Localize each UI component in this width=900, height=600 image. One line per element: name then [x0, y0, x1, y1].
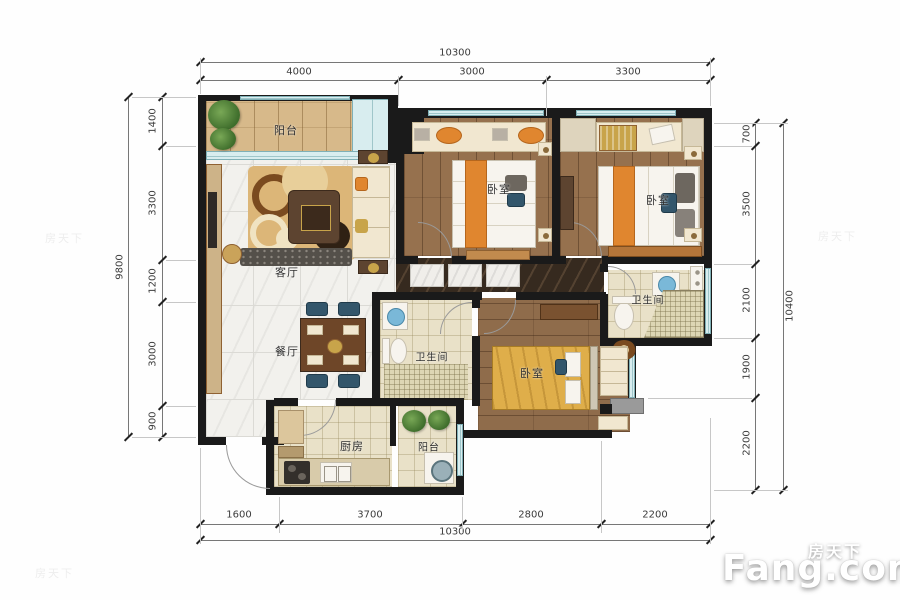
fridge — [278, 410, 304, 444]
extension-line — [714, 264, 752, 265]
dim-left-seg-3: 1200 — [148, 266, 159, 295]
dim-left-seg-4: 3000 — [148, 339, 159, 368]
wardrobe — [598, 416, 628, 430]
dim-right-seg-3: 2100 — [742, 285, 753, 314]
balcony-corner-glazing — [352, 99, 392, 153]
dim-right-total: 10400 — [785, 288, 796, 324]
dim-left-total: 9800 — [115, 252, 126, 281]
room-label-balcony-bottom: 阳台 — [418, 439, 440, 454]
washing-machine — [424, 452, 454, 484]
wall-bedroom3-bottom — [460, 430, 612, 438]
dining-chair — [338, 302, 360, 316]
wardrobe — [600, 346, 628, 396]
extension-line — [714, 123, 788, 124]
dim-bottom-seg-3: 2800 — [516, 510, 545, 521]
extension-line — [132, 97, 196, 98]
side-table — [358, 260, 388, 274]
extension-line — [648, 398, 752, 399]
bed-pillow — [675, 173, 695, 203]
bed-pillow — [565, 380, 581, 404]
lamp-icon — [691, 151, 697, 157]
bed-runner — [613, 166, 635, 246]
bed-2-foot-dresser — [608, 246, 702, 257]
kitchen-cabinet — [278, 446, 304, 458]
extension-line — [200, 58, 201, 94]
dim-left-seg-2: 3300 — [148, 188, 159, 217]
dining-table — [300, 318, 366, 372]
faint-watermark: 房天下 — [35, 565, 74, 581]
place-mat — [343, 325, 359, 335]
dim-line — [200, 62, 710, 63]
stove — [284, 461, 310, 484]
wall-bath1-right-a — [472, 300, 480, 308]
wall-kitchen-top-b — [336, 398, 464, 406]
bed-runner — [465, 160, 487, 248]
dining-chair — [306, 302, 328, 316]
dim-top-seg-2: 3000 — [457, 67, 486, 78]
dim-line — [755, 123, 756, 490]
dim-line — [128, 97, 129, 437]
dim-right-seg-5: 2200 — [742, 428, 753, 457]
extension-line — [166, 406, 196, 407]
plant — [210, 128, 236, 150]
place-mat — [307, 325, 323, 335]
room-label-bedroom-2: 卧室 — [646, 192, 670, 208]
bedroom-2-top-window — [576, 110, 676, 116]
room-label-bedroom-3: 卧室 — [520, 365, 544, 381]
wall-corner-stub — [600, 404, 612, 414]
faint-watermark: 房天下 — [818, 228, 857, 244]
bay-pillow — [492, 128, 508, 141]
plant — [208, 100, 240, 130]
bathroom-1-toilet-tank — [382, 338, 390, 364]
plant — [402, 410, 426, 432]
hallway-tile — [410, 264, 444, 287]
balcony-bottom-window — [457, 424, 463, 476]
hallway-tile — [448, 264, 482, 287]
extension-line — [714, 490, 788, 491]
place-mat — [307, 355, 323, 365]
bay-pillow — [414, 128, 430, 141]
balcony-top-window — [240, 96, 350, 100]
tv-icon — [208, 192, 217, 248]
extension-line — [200, 448, 201, 544]
wall-living-bedroom1 — [396, 108, 404, 258]
extension-line — [166, 302, 196, 303]
lamp-icon — [543, 233, 549, 239]
room-label-bath-2: 卫生间 — [632, 292, 665, 307]
dim-left-seg-1: 1400 — [148, 106, 159, 135]
side-table — [358, 150, 388, 164]
dim-line — [162, 97, 163, 437]
decor-plate — [368, 263, 379, 273]
dresser — [540, 304, 598, 320]
dim-bottom-seg-4: 2200 — [640, 510, 669, 521]
coffee-table — [288, 190, 340, 244]
bay-cushion — [436, 127, 462, 144]
extension-line — [546, 76, 547, 116]
sofa-cushion — [355, 177, 368, 191]
bay-pier — [560, 118, 596, 152]
nightstand — [684, 146, 702, 160]
dresser — [560, 176, 574, 230]
extension-line — [714, 146, 752, 147]
wall-kitchen-top-a — [274, 398, 298, 406]
hallway-tile — [486, 264, 520, 287]
burner-icon — [298, 473, 306, 480]
wall-bath2-left-b — [600, 294, 608, 346]
dim-line — [200, 80, 710, 81]
wall-bedroom3-top — [516, 292, 606, 300]
washer-drum-icon — [431, 460, 453, 482]
room-label-kitchen: 厨房 — [340, 438, 364, 454]
bathroom-1-basin — [387, 308, 405, 326]
place-mat — [343, 355, 359, 365]
nightstand — [538, 228, 552, 242]
lamp-icon — [543, 147, 549, 153]
wall-hall-top-c — [602, 256, 712, 264]
extension-line — [132, 437, 196, 438]
wall-bedroom1-bedroom2 — [552, 118, 560, 258]
wall-kitchen-balcony-divider — [390, 406, 396, 446]
kitchen-sink — [320, 462, 352, 483]
room-label-dining: 餐厅 — [275, 343, 299, 359]
corner-column — [610, 398, 644, 414]
wall-bath1-right-b — [472, 336, 480, 406]
sofa — [352, 166, 390, 258]
wall-bath1-left — [372, 300, 380, 406]
extension-line — [398, 76, 399, 106]
extension-line — [710, 58, 711, 106]
center-dish — [327, 339, 343, 354]
bathroom-2-right-window — [705, 268, 711, 334]
dim-right-seg-1: 700 — [742, 122, 753, 145]
wall-hall-top-a — [396, 256, 418, 264]
burner-icon — [288, 465, 296, 472]
headboard — [590, 346, 598, 410]
wall-kitchen-bottom — [266, 487, 464, 495]
sink-bowl — [324, 466, 337, 482]
extension-line — [166, 260, 196, 261]
room-label-balcony-top: 阳台 — [274, 122, 298, 138]
dim-top-seg-3: 3300 — [613, 67, 642, 78]
plant — [428, 410, 450, 430]
extension-line — [462, 497, 463, 533]
wall-bath2-left-a — [600, 264, 608, 272]
sink-bowl — [338, 466, 351, 482]
bay-gold-box — [599, 125, 637, 151]
entry-door-arc — [226, 445, 270, 489]
faint-watermark: 房天下 — [45, 230, 84, 246]
extension-line — [601, 441, 602, 533]
dining-chair — [338, 374, 360, 388]
decor-plate — [368, 153, 379, 163]
dim-bottom-total: 10300 — [437, 527, 473, 538]
dim-right-seg-4: 1900 — [742, 352, 753, 381]
bathroom-1-shower-floor — [384, 364, 468, 400]
living-floor-pocket — [206, 400, 266, 437]
nightstand — [538, 142, 552, 156]
room-label-bedroom-1: 卧室 — [487, 181, 511, 197]
coffee-table-tray — [301, 205, 331, 231]
bed-decor-pillow — [555, 359, 567, 375]
dim-bottom-seg-2: 3700 — [355, 510, 384, 521]
wall-bath1-top — [372, 292, 482, 300]
wall-left — [198, 95, 206, 445]
extension-line — [714, 338, 752, 339]
bed-1-foot-bench — [466, 250, 530, 260]
wall-living-bottom-a — [198, 437, 226, 445]
room-label-living: 客厅 — [275, 264, 299, 280]
round-side-table — [222, 244, 242, 264]
dim-top-total: 10300 — [437, 48, 473, 59]
bathroom-1-toilet — [390, 338, 407, 364]
dim-left-seg-5: 900 — [148, 409, 159, 432]
extension-line — [166, 146, 196, 147]
extension-line — [710, 418, 711, 544]
sofa-cushion — [355, 219, 368, 233]
dining-chair — [306, 374, 328, 388]
dim-bottom-seg-1: 1600 — [224, 510, 253, 521]
fang-watermark-logo: Fang.com — [722, 548, 900, 589]
lamp-icon — [691, 233, 697, 239]
bedroom-1-top-window — [428, 110, 544, 116]
dim-top-seg-1: 4000 — [284, 67, 313, 78]
room-label-bath-1: 卫生间 — [416, 349, 449, 364]
nightstand — [684, 228, 702, 242]
dim-right-seg-2: 3500 — [742, 189, 753, 218]
extension-line — [279, 497, 280, 533]
bed-pillow — [565, 352, 581, 377]
dim-line — [200, 540, 710, 541]
bed-1 — [452, 160, 536, 248]
floor-plan-canvas: 阳台 客厅 餐厅 卧室 卧室 卧室 卫生间 卫生间 厨房 阳台 10300 40… — [0, 0, 900, 600]
